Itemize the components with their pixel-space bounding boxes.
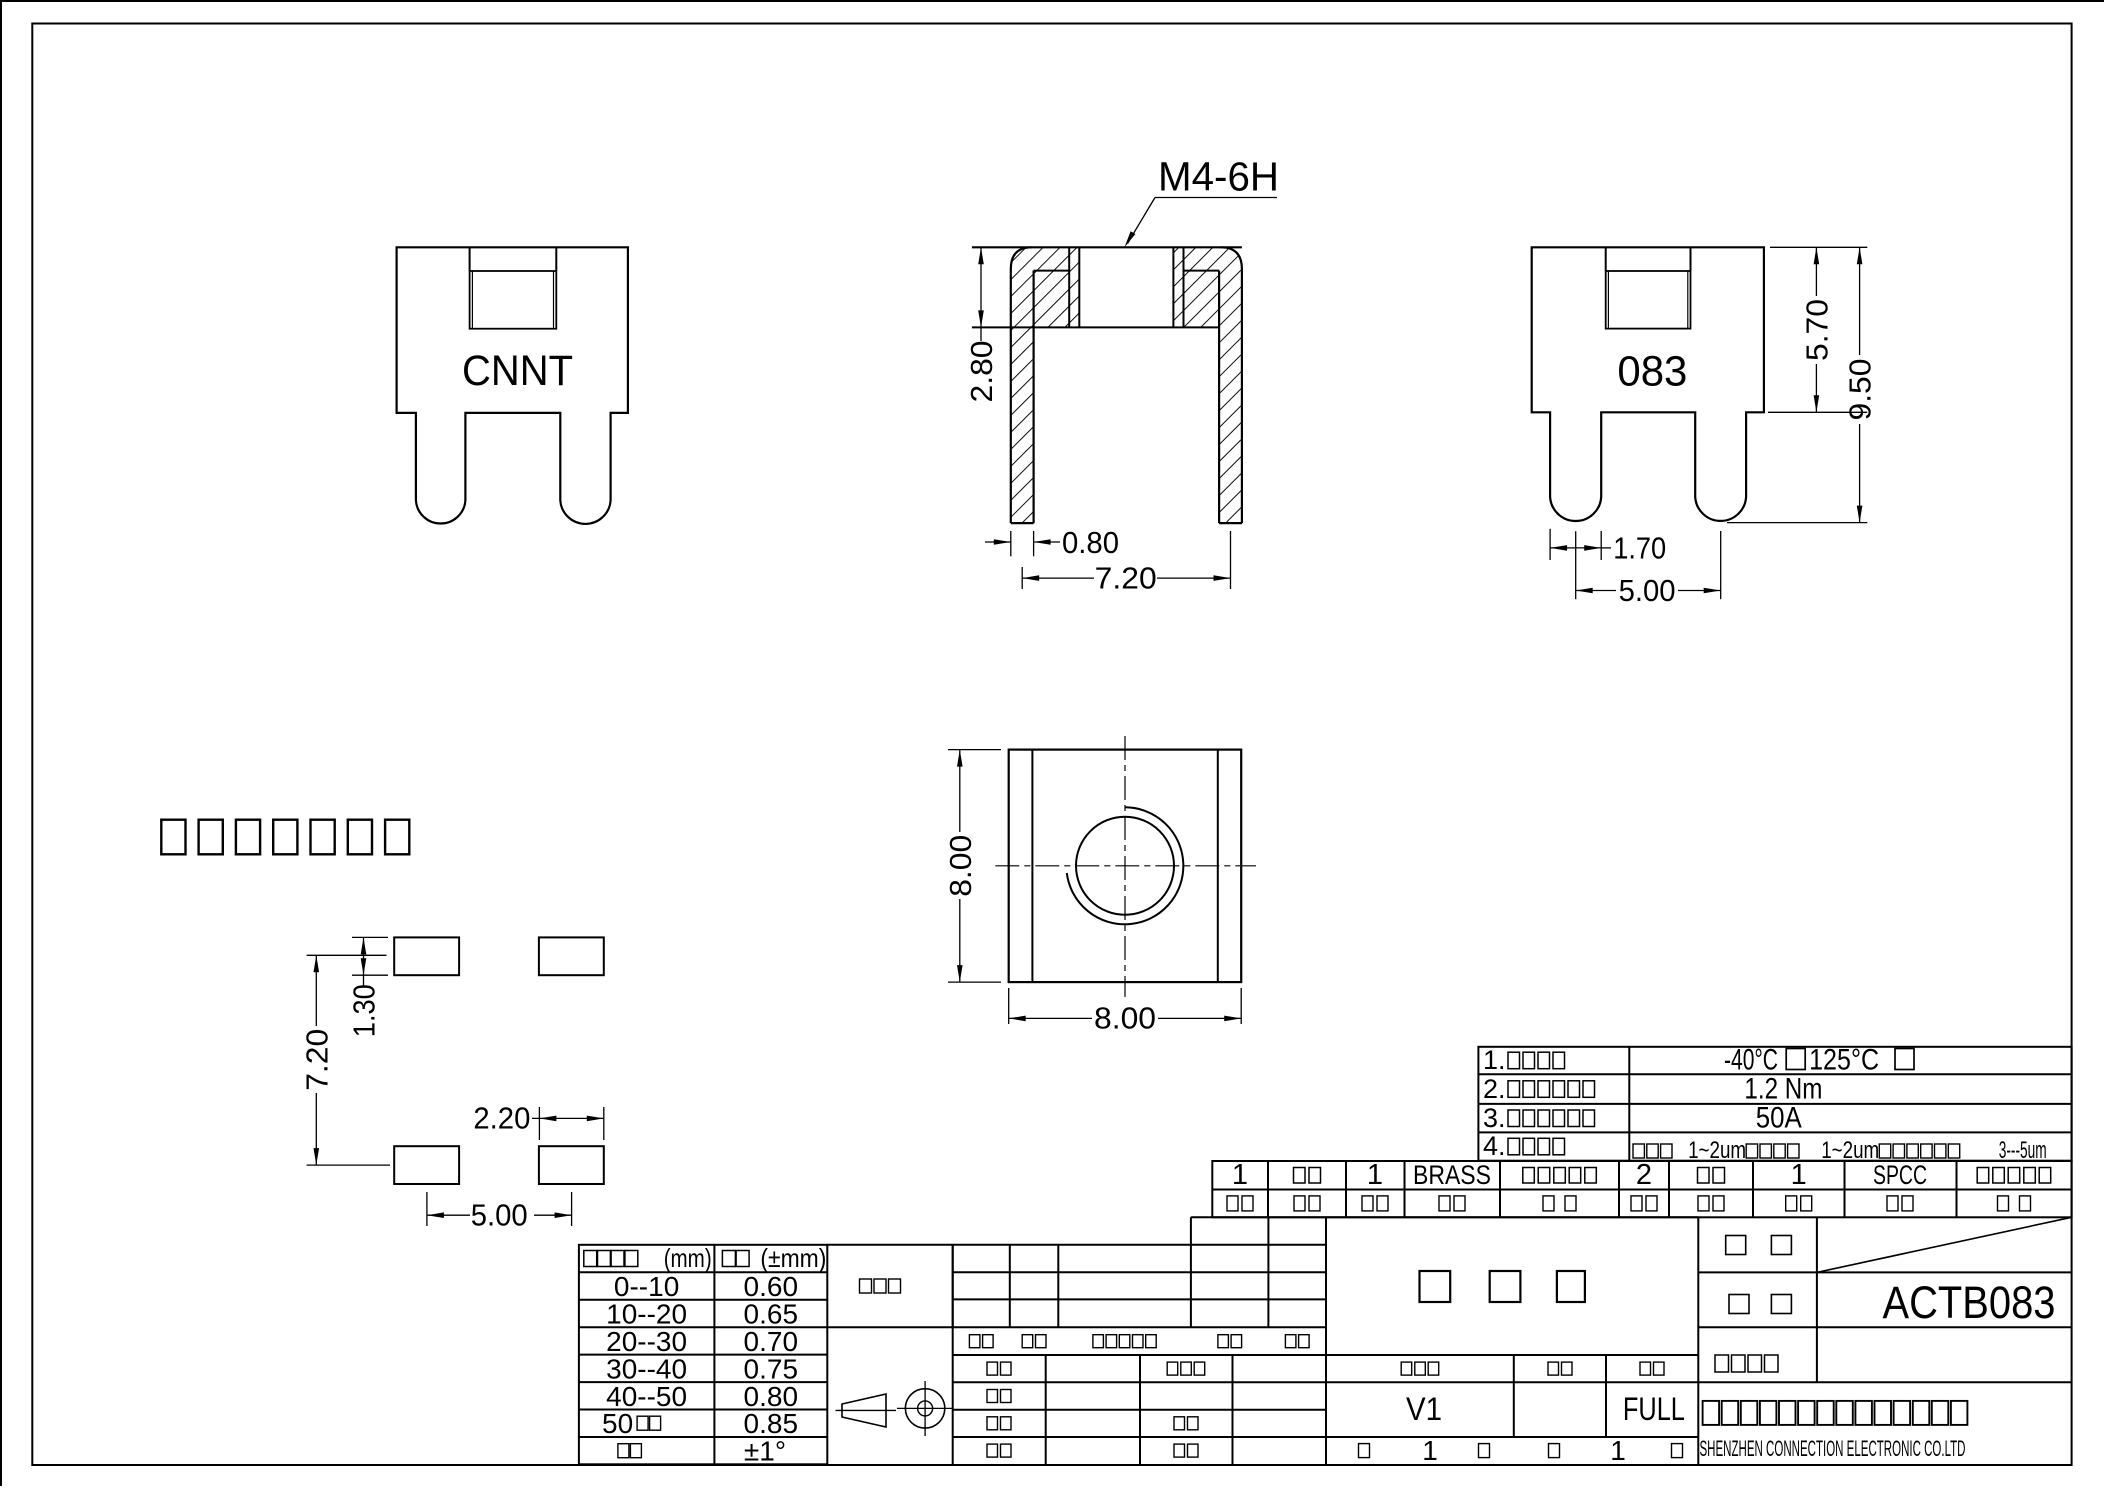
- svg-text:5.70: 5.70: [1799, 299, 1834, 361]
- svg-text:40--50: 40--50: [606, 1381, 687, 1412]
- svg-text:1~2um: 1~2um: [1821, 1137, 1879, 1164]
- svg-text:CNNT: CNNT: [462, 347, 573, 395]
- svg-text:1: 1: [1422, 1435, 1438, 1466]
- svg-text:0--10: 0--10: [614, 1271, 679, 1302]
- svg-text:1: 1: [1610, 1435, 1626, 1466]
- svg-text:0.75: 0.75: [744, 1353, 799, 1384]
- svg-text:±1°: ±1°: [744, 1436, 786, 1467]
- svg-text:1: 1: [1232, 1159, 1248, 1191]
- svg-text:20--30: 20--30: [606, 1326, 687, 1357]
- svg-text:FULL: FULL: [1623, 1391, 1685, 1427]
- svg-text:0.70: 0.70: [744, 1326, 799, 1357]
- svg-text:3---5um: 3---5um: [1999, 1137, 2047, 1164]
- svg-text:0.60: 0.60: [744, 1271, 799, 1302]
- svg-text:2.20: 2.20: [473, 1101, 530, 1136]
- svg-text:M4-6H: M4-6H: [1158, 153, 1279, 199]
- svg-text:0.80: 0.80: [744, 1381, 799, 1412]
- svg-text:SPCC: SPCC: [1873, 1160, 1927, 1190]
- svg-text:5.00: 5.00: [1619, 573, 1676, 608]
- svg-text:50: 50: [602, 1408, 633, 1439]
- svg-text:2.80: 2.80: [964, 341, 999, 403]
- svg-text:0.65: 0.65: [744, 1299, 799, 1330]
- svg-text:3.: 3.: [1483, 1103, 1506, 1133]
- svg-text:2.: 2.: [1483, 1074, 1506, 1104]
- svg-text:ACTB083: ACTB083: [1883, 1277, 2056, 1328]
- svg-text:1.: 1.: [1483, 1045, 1506, 1075]
- svg-text:1: 1: [1367, 1159, 1383, 1191]
- svg-text:9.50: 9.50: [1843, 359, 1878, 421]
- svg-text:1~2um: 1~2um: [1688, 1137, 1746, 1164]
- svg-text:083: 083: [1617, 348, 1687, 396]
- svg-text:5.00: 5.00: [471, 1198, 528, 1233]
- svg-text:0.85: 0.85: [744, 1408, 799, 1439]
- svg-text:(mm): (mm): [664, 1243, 712, 1273]
- svg-text:0.80: 0.80: [1062, 525, 1119, 560]
- svg-text:SHENZHEN CONNECTION ELECTRONIC: SHENZHEN CONNECTION ELECTRONIC CO.LTD: [1700, 1436, 1966, 1461]
- svg-text:1: 1: [1791, 1159, 1807, 1191]
- svg-text:(±mm): (±mm): [760, 1243, 826, 1273]
- svg-text:BRASS: BRASS: [1413, 1160, 1491, 1190]
- svg-text:4.: 4.: [1483, 1131, 1506, 1161]
- svg-text:8.00: 8.00: [1094, 1001, 1156, 1036]
- svg-text:2: 2: [1636, 1159, 1652, 1191]
- svg-text:1.70: 1.70: [1613, 531, 1666, 566]
- svg-text:30--40: 30--40: [606, 1353, 687, 1384]
- svg-text:50A: 50A: [1756, 1102, 1802, 1135]
- svg-text:V1: V1: [1406, 1391, 1442, 1427]
- svg-text:7.20: 7.20: [299, 1029, 334, 1091]
- svg-text:10--20: 10--20: [606, 1299, 687, 1330]
- svg-text:7.20: 7.20: [1095, 561, 1157, 596]
- svg-text:8.00: 8.00: [943, 835, 978, 897]
- svg-text:1.30: 1.30: [347, 984, 382, 1037]
